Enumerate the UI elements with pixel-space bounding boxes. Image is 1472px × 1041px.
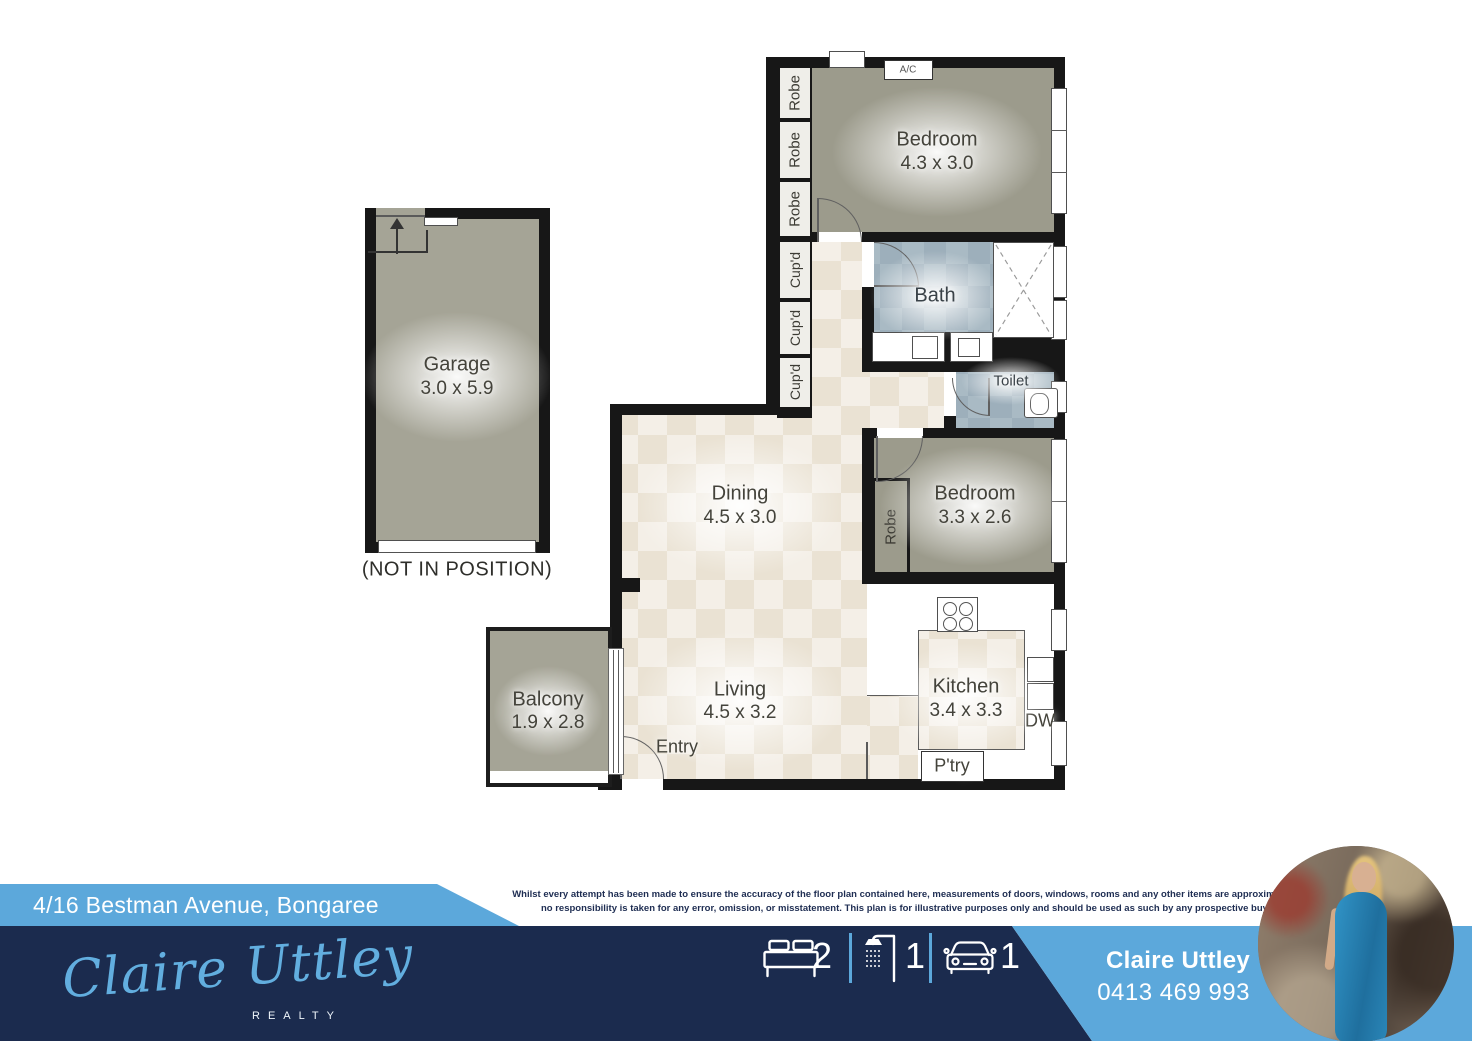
ac-label: A/C bbox=[900, 65, 917, 76]
burner bbox=[943, 617, 957, 631]
agent-photo bbox=[1258, 846, 1454, 1041]
sliding-door-track bbox=[618, 650, 619, 773]
wall-left-upper bbox=[766, 57, 777, 415]
shower-x bbox=[994, 243, 1053, 337]
hall-floor bbox=[812, 242, 862, 415]
label-glow bbox=[880, 446, 1070, 566]
label-glow bbox=[635, 436, 845, 576]
cupboard-3-label: Cup'd bbox=[787, 364, 803, 400]
door-leaf-bedroom1 bbox=[817, 198, 819, 242]
living-label: Living bbox=[714, 679, 766, 702]
burner bbox=[959, 617, 973, 631]
robe-1-label: Robe bbox=[787, 75, 804, 111]
baths-count: 1 bbox=[905, 932, 925, 980]
wall-stub-kitchen bbox=[866, 742, 868, 779]
garage-note: (NOT IN POSITION) bbox=[362, 559, 552, 582]
wall bbox=[944, 416, 956, 428]
wall bbox=[923, 428, 1065, 438]
kitchen-label: Kitchen bbox=[933, 676, 1000, 699]
robe-2-label: Robe bbox=[787, 132, 804, 168]
dining-dims: 4.5 x 3.0 bbox=[704, 507, 777, 529]
property-address: 4/16 Bestman Avenue, Bongaree bbox=[33, 884, 379, 926]
bedroom1-dims: 4.3 x 3.0 bbox=[901, 153, 974, 175]
bath-label: Bath bbox=[914, 285, 955, 308]
burner bbox=[959, 602, 973, 616]
dining-label: Dining bbox=[712, 483, 769, 506]
car-icon bbox=[943, 936, 997, 980]
living-dims: 4.5 x 3.2 bbox=[704, 702, 777, 724]
disclaimer-line-1: Whilst every attempt has been made to en… bbox=[512, 888, 1308, 902]
sink-right bbox=[958, 338, 980, 357]
bedroom2-label: Bedroom bbox=[934, 483, 1015, 506]
stats-separator bbox=[929, 933, 932, 983]
sliding-door-balcony bbox=[608, 648, 624, 775]
shower-icon bbox=[863, 931, 905, 983]
shower bbox=[993, 242, 1054, 338]
toilet-label: Toilet bbox=[993, 373, 1028, 390]
cars-count: 1 bbox=[1000, 932, 1020, 980]
agent-phone: 0413 469 993 bbox=[1030, 979, 1250, 1007]
disclaimer-line-2: no responsibility is taken for any error… bbox=[541, 902, 1279, 916]
photo-dress bbox=[1335, 892, 1387, 1041]
cupboard-2-label: Cup'd bbox=[787, 310, 803, 346]
garage-entry-line-v bbox=[426, 230, 428, 253]
robe-3-label: Robe bbox=[787, 191, 804, 227]
wall bbox=[862, 232, 1065, 242]
window-top bbox=[829, 51, 865, 68]
burner bbox=[943, 602, 957, 616]
bedroom2-dims: 3.3 x 2.6 bbox=[939, 507, 1012, 529]
pantry-label: P'try bbox=[934, 756, 969, 777]
cupboard-1-label: Cup'd bbox=[787, 252, 803, 288]
garage-window bbox=[424, 217, 458, 226]
door-leaf-bedroom2 bbox=[876, 436, 878, 482]
window-mullion bbox=[1051, 130, 1067, 131]
agency-logo-realty: REALTY bbox=[252, 1010, 342, 1022]
label-glow bbox=[832, 87, 1042, 217]
garage-door bbox=[378, 540, 536, 553]
bedroom1-label: Bedroom bbox=[896, 129, 977, 152]
beds-count: 2 bbox=[812, 932, 832, 980]
entry-label: Entry bbox=[656, 737, 698, 758]
window-bedroom1 bbox=[1051, 88, 1067, 214]
stove bbox=[937, 597, 978, 632]
balcony-dims: 1.9 x 2.8 bbox=[512, 712, 585, 734]
window-kitchen-1 bbox=[1051, 609, 1067, 651]
garage-dims: 3.0 x 5.9 bbox=[421, 378, 494, 400]
agent-name: Claire Uttley bbox=[1030, 947, 1250, 975]
garage-open-wall-line bbox=[374, 215, 426, 217]
disclaimer: Whilst every attempt has been made to en… bbox=[520, 888, 1300, 915]
stats-separator bbox=[849, 933, 852, 983]
wall-bottom-main bbox=[663, 779, 1065, 790]
kitchen-dims: 3.4 x 3.3 bbox=[930, 700, 1003, 722]
garage-entry-line-h bbox=[368, 251, 428, 253]
toilet-lobby-floor bbox=[862, 372, 944, 428]
wall-dining-top bbox=[610, 404, 777, 415]
floor-plan-page: Garage 3.0 x 5.9 (NOT IN POSITION) Robe … bbox=[0, 0, 1472, 1041]
photo-head bbox=[1352, 862, 1376, 892]
label-glow bbox=[362, 312, 552, 442]
garage-label: Garage bbox=[424, 354, 491, 377]
agent-contact: Claire Uttley 0413 469 993 bbox=[1030, 947, 1250, 1007]
window-mullion bbox=[1051, 172, 1067, 173]
balcony-label: Balcony bbox=[512, 689, 583, 712]
wall-stub-dining bbox=[610, 578, 640, 592]
sliding-door-track bbox=[613, 650, 614, 773]
